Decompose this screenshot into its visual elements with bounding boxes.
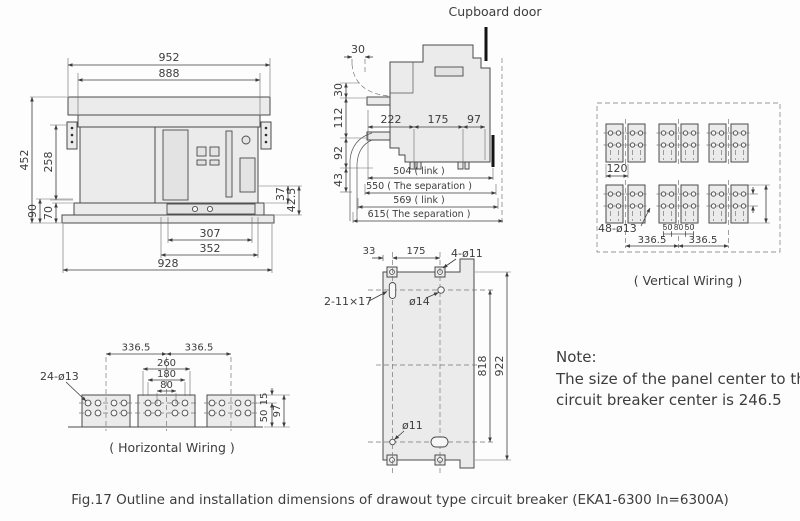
- dim-50: 50: [259, 410, 270, 423]
- dim-336-5-a: 336.5: [638, 235, 667, 246]
- dim-30-top: 30: [351, 43, 365, 56]
- hole-dia14: [438, 287, 444, 293]
- breaker-button: [197, 147, 206, 156]
- breaker-slot: [226, 131, 232, 197]
- breaker-nameplate: [240, 158, 255, 192]
- note-line-1: The size of the panel center to the: [555, 370, 800, 388]
- dim-952: 952: [159, 51, 180, 64]
- dim-15: 15: [259, 393, 270, 406]
- breaker-round-button: [242, 136, 250, 144]
- dim-180: 180: [157, 369, 176, 380]
- lifting-bracket-right: [261, 122, 271, 149]
- dim-33: 33: [363, 246, 376, 257]
- cable-curve: [350, 133, 372, 221]
- dim-80: 80: [674, 223, 684, 232]
- mounting-tab: [387, 267, 397, 277]
- dim-569-link: 569 ( link ): [393, 195, 444, 206]
- front-view: 952 888 452 258 90 70 37 42.5 307: [18, 51, 302, 273]
- dim-90: 90: [26, 204, 39, 218]
- breaker-face-panel: [163, 130, 188, 200]
- terminal-pad: [707, 185, 729, 223]
- dim-112: 112: [332, 108, 345, 129]
- dim-888: 888: [159, 67, 180, 80]
- side-handle: [435, 67, 463, 76]
- terminal-pad: [679, 124, 701, 162]
- dim-928: 928: [158, 257, 179, 270]
- dim-slot-label: 2-11×17: [324, 295, 372, 308]
- technical-drawing: 952 888 452 258 90 70 37 42.5 307: [0, 0, 800, 521]
- dim-42-5: 42.5: [285, 188, 298, 213]
- dim-43: 43: [332, 173, 345, 187]
- lifting-bracket-left: [67, 122, 77, 149]
- dim-336-5-b: 336.5: [185, 343, 214, 354]
- dim-307: 307: [200, 227, 221, 240]
- terminal-pad: [657, 185, 679, 223]
- slot-11x17: [389, 283, 395, 299]
- dim-48-holes: 48-ø13: [598, 222, 637, 235]
- dim-97: 97: [272, 405, 283, 418]
- dim-175: 175: [406, 246, 425, 257]
- figure-canvas: 952 888 452 258 90 70 37 42.5 307: [0, 0, 800, 521]
- dim-80: 80: [160, 380, 173, 391]
- dim-97: 97: [467, 113, 481, 126]
- horizontal-wiring-view: 336.5 336.5 260 180 80 24-ø13 15 50 97 (…: [40, 343, 290, 456]
- dim-175: 175: [428, 113, 449, 126]
- terminal-pad: [626, 124, 648, 162]
- dim-hole14-label: ø14: [409, 295, 430, 308]
- terminal-pad: [626, 185, 648, 223]
- dim-336-5-b: 336.5: [689, 235, 718, 246]
- dim-615-separation: 615( The separation ): [368, 209, 471, 220]
- dim-922: 922: [493, 356, 506, 377]
- breaker-upper-band: [78, 115, 260, 127]
- cupboard-door-label: Cupboard door: [448, 4, 542, 19]
- breaker-button: [210, 147, 219, 156]
- dim-120: 120: [607, 162, 628, 175]
- note-title: Note:: [556, 348, 597, 366]
- dim-50b: 50: [685, 223, 695, 232]
- breaker-side-profile: [390, 45, 490, 162]
- dim-352: 352: [200, 242, 221, 255]
- cupboard-door-line: [485, 27, 488, 61]
- bottom-slot: [431, 437, 448, 447]
- breaker-button: [197, 160, 206, 165]
- mounting-plate-view: 33 175 4-ø11 2-11×17 ø14 818 922 ø11: [324, 246, 511, 474]
- figure-caption: Fig.17 Outline and installation dimensio…: [71, 492, 728, 508]
- dim-550-separation: 550 ( The separation ): [366, 181, 472, 192]
- vertical-wiring-view: 120 48-ø13 50 80 50 336.5 336.5 ( Vertic…: [597, 103, 780, 288]
- dim-4-holes: 4-ø11: [451, 247, 483, 260]
- dim-92: 92: [332, 146, 345, 160]
- mounting-tab: [387, 455, 397, 465]
- dim-70: 70: [42, 206, 55, 220]
- dim-452: 452: [18, 150, 31, 171]
- cupboard-door-line-lower: [492, 135, 495, 167]
- vertical-wiring-label: ( Vertical Wiring ): [634, 273, 743, 288]
- note-block: Note: The size of the panel center to th…: [555, 348, 800, 409]
- terminal-pad: [679, 185, 701, 223]
- dim-260: 260: [157, 358, 176, 369]
- dim-504-link: 504 ( link ): [393, 166, 444, 177]
- dim-258: 258: [42, 152, 55, 173]
- terminal-pad: [604, 185, 626, 223]
- side-view: Cupboard door 30 30 112 92 43 22: [332, 4, 542, 224]
- hole-dia11: [390, 439, 396, 445]
- dim-hole11-label: ø11: [402, 419, 423, 432]
- terminal-pad: [707, 124, 729, 162]
- door-swing-arc: [352, 64, 388, 96]
- terminal-pad: [657, 124, 679, 162]
- terminal-stub: [367, 97, 390, 105]
- dim-24-holes: 24-ø13: [40, 370, 79, 383]
- dim-818: 818: [476, 356, 489, 377]
- terminal-pad: [604, 124, 626, 162]
- dim-50a: 50: [663, 223, 673, 232]
- breaker-button: [210, 160, 219, 165]
- breaker-top-housing: [68, 97, 270, 115]
- terminal-pad: [729, 124, 751, 162]
- dim-30-left: 30: [332, 83, 345, 97]
- horizontal-wiring-label: ( Horizontal Wiring ): [109, 440, 235, 455]
- dim-222: 222: [381, 113, 402, 126]
- dim-336-5-a: 336.5: [122, 343, 151, 354]
- terminal-pad: [729, 185, 751, 223]
- note-line-2: circuit breaker center is 246.5: [556, 391, 782, 409]
